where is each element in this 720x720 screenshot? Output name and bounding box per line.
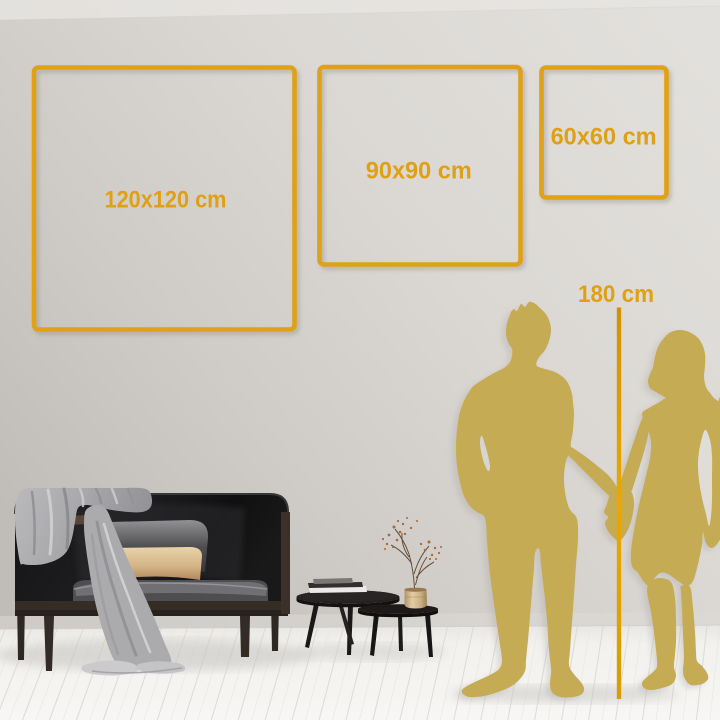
svg-text:90x90 cm: 90x90 cm	[366, 157, 472, 184]
svg-text:60x60 cm: 60x60 cm	[551, 124, 657, 151]
svg-text:120x120 cm: 120x120 cm	[105, 187, 227, 214]
svg-text:180 cm: 180 cm	[578, 281, 654, 308]
